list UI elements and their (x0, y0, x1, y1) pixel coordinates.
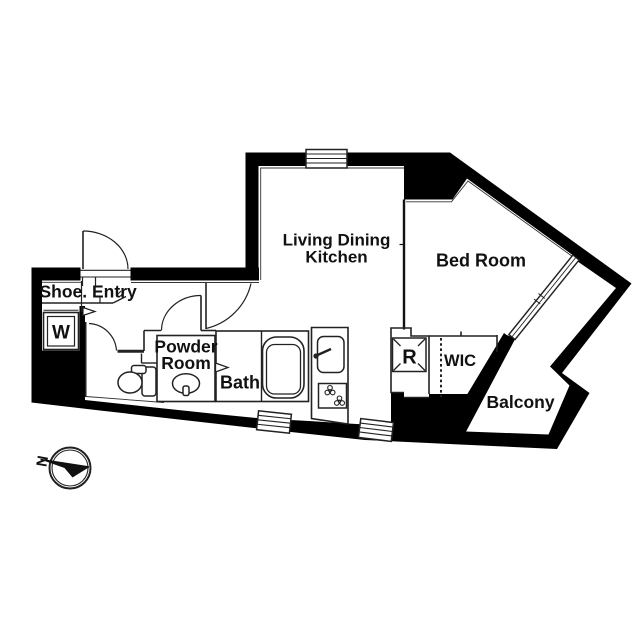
svg-text:Balcony: Balcony (487, 392, 555, 412)
svg-text:Bed Room: Bed Room (436, 251, 526, 271)
svg-text:W: W (52, 323, 70, 344)
svg-text:WIC: WIC (444, 352, 476, 370)
svg-text:R: R (402, 347, 417, 369)
svg-text:Room: Room (161, 353, 211, 373)
svg-text:Kitchen: Kitchen (305, 248, 367, 267)
svg-text:Bath: Bath (220, 373, 260, 393)
svg-text:Shoe. Entry: Shoe. Entry (40, 282, 138, 302)
